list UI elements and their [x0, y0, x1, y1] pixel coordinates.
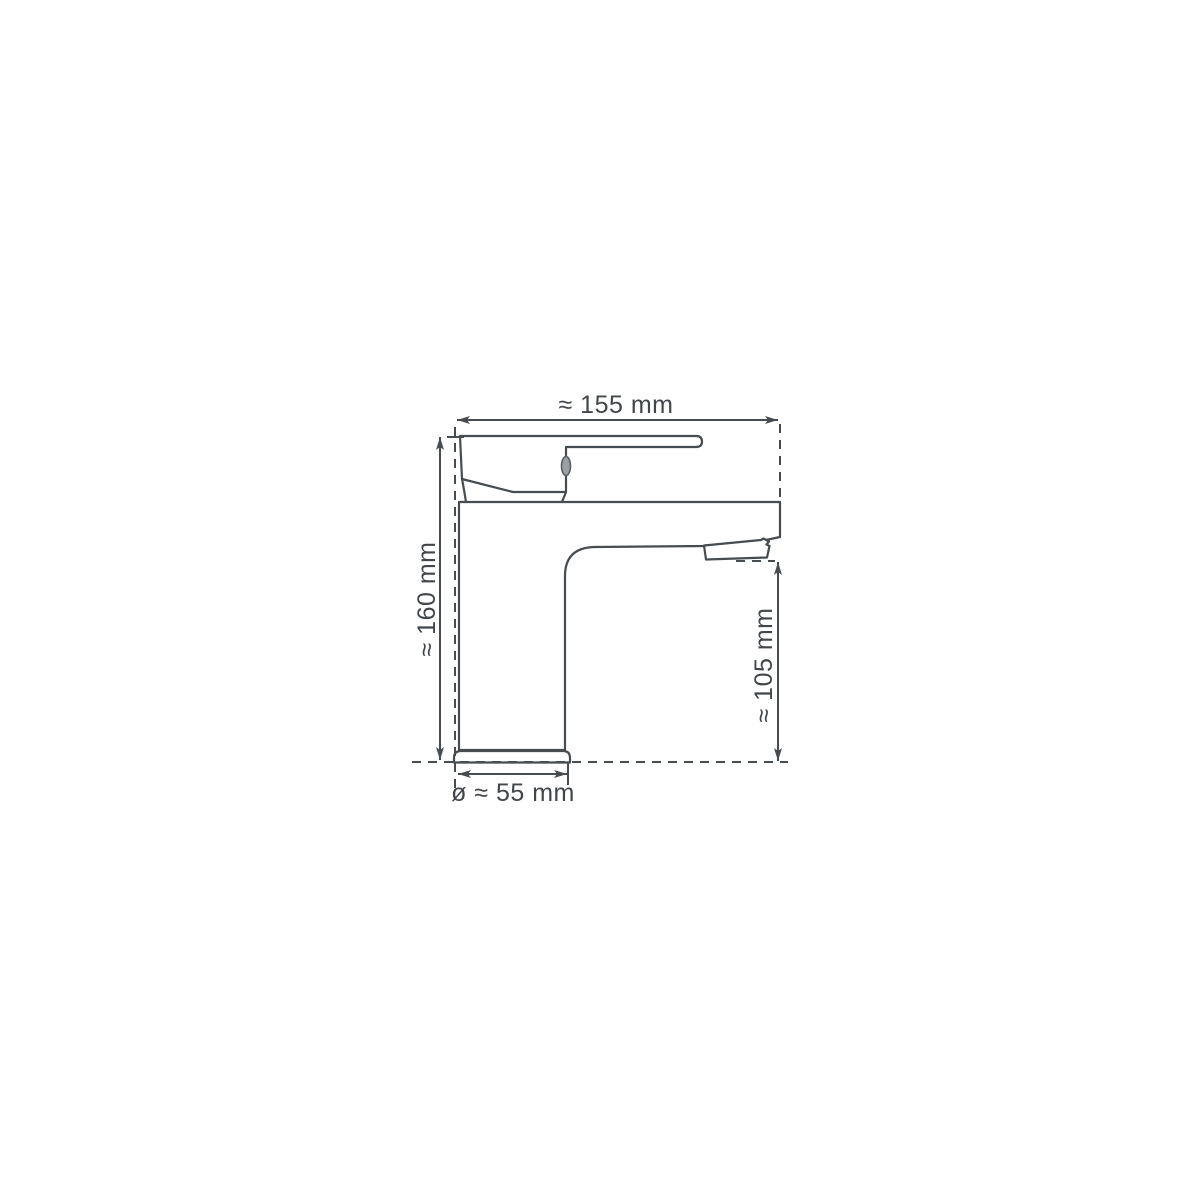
dimension-label-left-height: ≈ 160 mm	[413, 542, 441, 657]
faucet-dimension-drawing: ≈ 155 mm ≈ 160 mm ≈ 105 mm ø ≈ 55 mm	[0, 0, 1200, 1200]
faucet-base-plate	[454, 751, 570, 763]
faucet-body	[459, 502, 780, 750]
faucet-outline-group	[454, 436, 780, 763]
faucet-handle-lever	[460, 436, 702, 492]
dimension-label-right-height: ≈ 105 mm	[750, 608, 778, 723]
handle-collar-rear-curve	[562, 492, 566, 502]
handle-pivot-ellipse	[562, 457, 571, 476]
handle-collar-front-curve	[462, 479, 466, 502]
dimension-label-base-diameter: ø ≈ 55 mm	[451, 779, 575, 807]
dimension-label-top-width: ≈ 155 mm	[559, 391, 674, 419]
product-dimension-diagram: ≈ 155 mm ≈ 160 mm ≈ 105 mm ø ≈ 55 mm	[0, 0, 1200, 1200]
